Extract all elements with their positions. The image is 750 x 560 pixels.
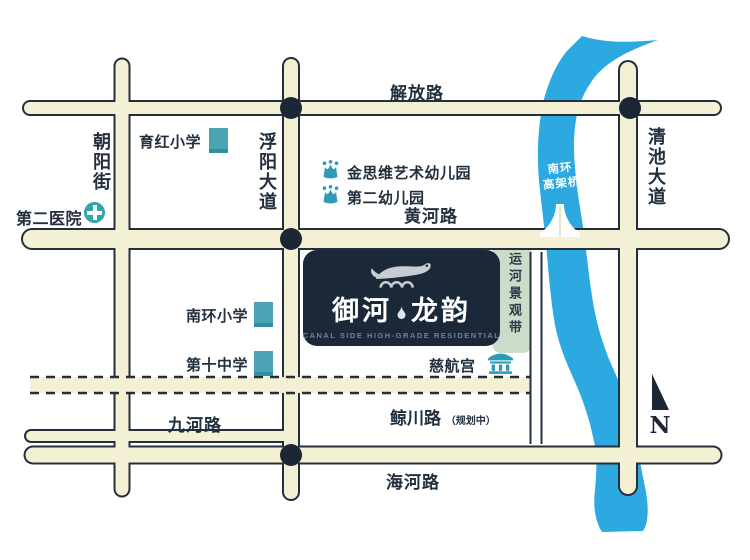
logo-title: 御河 龙韵 [332,297,471,327]
road-label-jingchuan-status: （规划中） [446,416,496,427]
poi-label-yuhong-primary: 育红小学 [139,131,201,152]
poi-label-nanhuan-primary: 南环小学 [186,305,248,326]
poi-label-second-hospital: 第二医院 [16,205,82,229]
school-square-icon-no10 [254,351,273,376]
road-label-fuyang: 浮阳大道 [254,132,280,212]
school-square-icon-yuhong [209,128,228,153]
kindergarten-crown-icon-no2 [320,185,341,210]
school-square-icon-nanhuan [254,302,273,327]
water-drop-icon [397,306,406,319]
compass-n-label: N [645,412,675,439]
hospital-cross-icon [84,202,105,223]
poi-label-jinsiwei-kindergarten: 金思维艺术幼儿园 [347,162,471,183]
bridge-label: 南环 高架桥 [537,160,586,195]
dragon-boat-icon [365,257,439,296]
road-label-jingchuan-name: 鲸川路 [390,409,441,428]
logo-subtitle: CANAL SIDE HIGH-GRADE RESIDENTIAL [303,331,501,340]
belt-label: 运河景观带 [505,252,524,337]
temple-icon [487,351,514,379]
road-label-haihe: 海河路 [386,468,440,493]
road-label-jingchuan: 鲸川路 （规划中） [390,404,496,429]
location-map: 解放路 黄河路 九河路 海河路 鲸川路 （规划中） 朝阳街 浮阳大道 清池大道 … [0,0,750,560]
poi-label-no10-middle: 第十中学 [186,354,248,375]
road-label-jiuhe: 九河路 [168,411,222,436]
poi-label-cihang-temple: 慈航宫 [429,355,476,376]
road-label-chaoyang: 朝阳街 [88,132,114,192]
project-logo-card: 御河 龙韵 CANAL SIDE HIGH-GRADE RESIDENTIAL [303,250,500,346]
logo-title-right: 龙韵 [411,297,471,327]
planned-road-dashed [30,377,532,393]
road-label-jiefang: 解放路 [390,79,444,104]
poi-label-no2-kindergarten: 第二幼儿园 [347,187,425,208]
kindergarten-crown-icon-jinsiwei [320,160,341,185]
logo-title-left: 御河 [332,297,392,327]
canal-side-road [531,252,542,444]
compass-arrow-icon [652,374,669,410]
road-label-qingchi: 清池大道 [643,127,669,207]
